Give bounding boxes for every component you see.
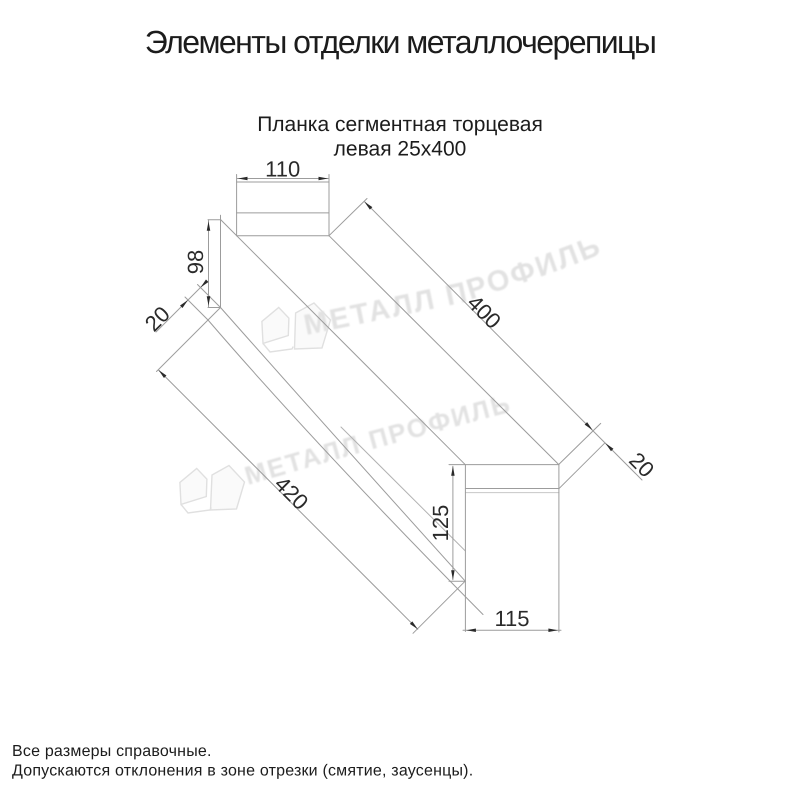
svg-text:110: 110 bbox=[265, 156, 300, 181]
svg-text:Все размеры справочные.: Все размеры справочные. bbox=[12, 743, 212, 760]
svg-text:Планка сегментная торцевая: Планка сегментная торцевая bbox=[257, 113, 543, 136]
svg-text:125: 125 bbox=[428, 505, 453, 542]
svg-text:115: 115 bbox=[494, 606, 529, 631]
svg-text:Допускаются отклонения в зоне: Допускаются отклонения в зоне отрезки (с… bbox=[12, 763, 473, 780]
svg-text:Элементы отделки металлочерепи: Элементы отделки металлочерепицы bbox=[145, 24, 656, 60]
svg-text:левая 25х400: левая 25х400 bbox=[334, 138, 467, 161]
svg-text:98: 98 bbox=[183, 250, 208, 274]
